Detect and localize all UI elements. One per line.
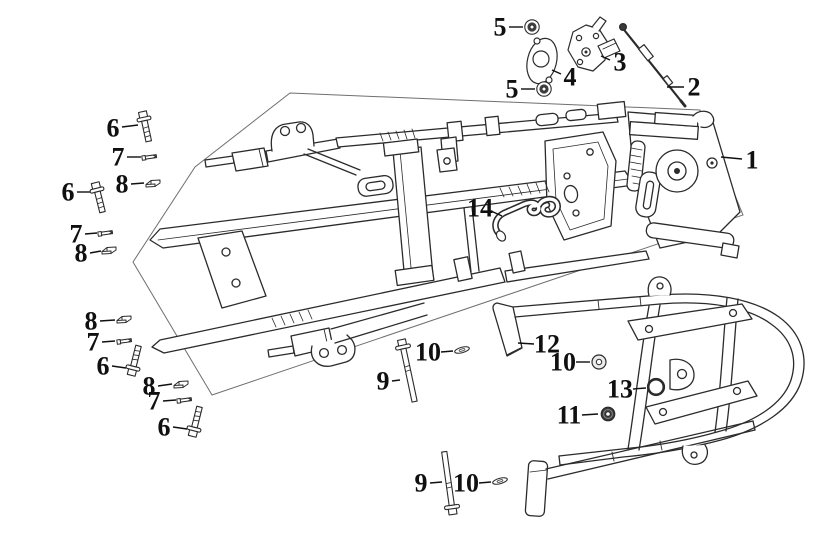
pin-screw-icon [117, 338, 132, 344]
callout-leader-9 [392, 380, 400, 381]
rear-carrier-drawing [493, 277, 804, 517]
ring-icon [648, 379, 664, 395]
callout-leader-7 [85, 233, 97, 234]
callout-label-14: 14 [467, 194, 493, 223]
callout-leader-11 [582, 414, 598, 415]
callout-label-8: 8 [143, 372, 156, 401]
center-cross-bar [393, 147, 433, 282]
callout-leader-10 [479, 482, 491, 483]
callout-label-10: 10 [415, 338, 441, 367]
callout-label-6: 6 [107, 114, 120, 143]
callout-leader-6 [122, 125, 138, 127]
callout-label-12: 12 [534, 330, 560, 359]
washer-icon [492, 476, 508, 485]
clip-nut-icon [174, 381, 188, 388]
callout-label-6: 6 [62, 178, 75, 207]
pin-screw-icon [98, 230, 113, 236]
callout-label-8: 8 [75, 239, 88, 268]
clip-nut-icon [117, 316, 131, 323]
callout-leader-6 [173, 427, 187, 429]
clip-nut-icon [102, 247, 116, 254]
left-panel [198, 231, 266, 308]
callout-label-9: 9 [415, 469, 428, 498]
callout-leader-8 [131, 183, 144, 184]
carrier-front-tube [493, 303, 522, 356]
callout-label-1: 1 [746, 146, 759, 175]
callout-label-8: 8 [116, 170, 129, 199]
callout-label-10: 10 [453, 469, 479, 498]
diagram-canvas: 1234556666777788889910101011121314 [0, 0, 838, 545]
callout-label-11: 11 [557, 401, 582, 430]
nut-icon [601, 407, 615, 421]
pin-screw-icon [177, 397, 192, 403]
clip-nut-icon [146, 180, 160, 187]
washer-icon [592, 355, 606, 369]
flange-bolt-icon [185, 405, 206, 438]
washer-icon [454, 345, 470, 354]
callout-label-13: 13 [607, 375, 633, 404]
washer-icon [525, 20, 539, 34]
pin-screw-icon [142, 154, 157, 160]
callout-leader-7 [102, 341, 115, 342]
callout-leader-13 [633, 388, 646, 389]
lock-cable-drawing [620, 24, 685, 106]
callout-label-6: 6 [158, 413, 171, 442]
callout-leader-8 [90, 251, 101, 253]
callout-label-7: 7 [112, 143, 125, 172]
callout-label-2: 2 [688, 73, 701, 102]
callout-leader-10 [441, 351, 453, 352]
callout-leader-8 [100, 320, 115, 321]
flange-bolt-icon [136, 110, 156, 143]
callout-label-3: 3 [614, 48, 627, 77]
callout-label-4: 4 [564, 63, 577, 92]
callout-leader-9 [430, 482, 442, 483]
callout-label-5: 5 [494, 13, 507, 42]
callout-leader-8 [158, 384, 172, 386]
callout-label-8: 8 [85, 307, 98, 336]
lock-bracket-plate-drawing [522, 35, 561, 87]
upper-linkage-cylinder [232, 148, 268, 171]
callout-leader-7 [163, 400, 176, 401]
parts-diagram-page: 1234556666777788889910101011121314 [0, 0, 838, 545]
callout-leader-12 [518, 343, 534, 344]
flange-bolt-icon [88, 181, 109, 214]
callout-label-9: 9 [377, 367, 390, 396]
washer-icon [537, 82, 551, 96]
callout-label-5: 5 [506, 75, 519, 104]
r-pin-clip-drawing [495, 199, 558, 243]
upper-bracket [271, 122, 314, 151]
callout-leader-6 [112, 366, 126, 368]
